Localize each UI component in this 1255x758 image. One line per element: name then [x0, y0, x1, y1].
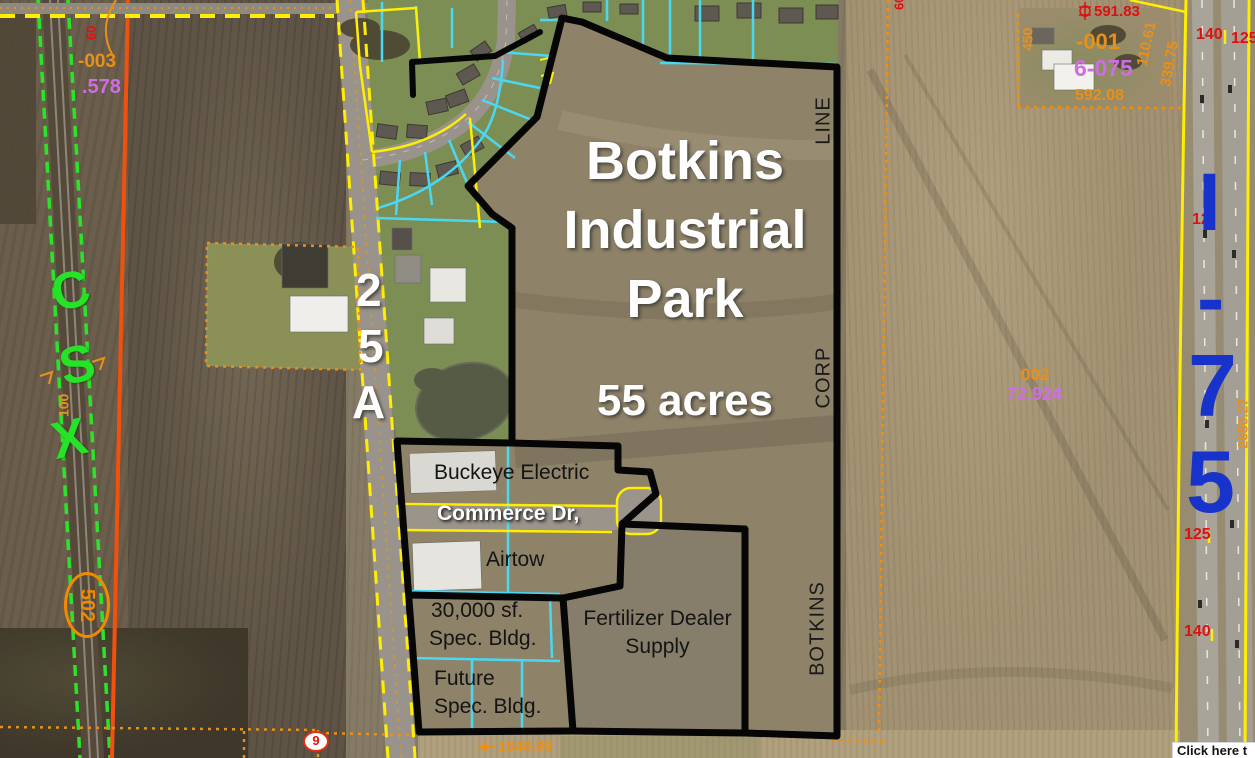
dim-450: 450	[1021, 19, 1036, 59]
corp-line-word-line: LINE	[814, 91, 835, 151]
route-25a-char-5: 5	[358, 322, 384, 370]
dim-2650: 2650.27	[1236, 393, 1251, 453]
i75-char-7: 7	[1188, 342, 1237, 430]
label-commerce-dr: Commerce Dr,	[437, 503, 579, 525]
parcel-001-code: 6-075	[1074, 56, 1133, 80]
parcel-002-label: 002	[1021, 366, 1049, 384]
frontage-125-top: 125	[1231, 31, 1255, 48]
corp-line-word-botkins: BOTKINS	[808, 579, 829, 679]
dim-arrowhead	[478, 742, 487, 752]
label-future-line2: Spec. Bldg.	[434, 696, 541, 718]
i75-char-i: I	[1198, 162, 1221, 244]
dim-60-right: 60	[892, 0, 906, 10]
parcel-002-acreage: 72.924	[1007, 385, 1062, 404]
dim-592: 592.08	[1075, 88, 1124, 105]
route-25a-char-a: A	[352, 378, 385, 426]
frontage-140-top: 140	[1196, 27, 1223, 44]
route-9-marker: 9	[303, 731, 329, 752]
label-buckeye-electric: Buckeye Electric	[434, 462, 589, 484]
label-fertilizer-line1: Fertilizer Dealer	[565, 608, 750, 630]
click-here-button[interactable]: Click here t	[1172, 742, 1255, 758]
label-airtow: Airtow	[486, 549, 544, 571]
park-title-line1: Botkins	[540, 133, 830, 190]
label-spec30-line2: Spec. Bldg.	[429, 628, 536, 650]
i75-char-5: 5	[1186, 438, 1235, 526]
dim-591: 591.83	[1094, 4, 1140, 20]
i75-char-dash: -	[1197, 258, 1224, 340]
label-fertilizer-line2: Supply	[565, 636, 750, 658]
corp-line-word-corp: CORP	[814, 349, 835, 409]
park-title-line2: Industrial	[510, 202, 860, 259]
route-25a-char-2: 2	[356, 266, 382, 314]
route-502-label: 502	[76, 588, 99, 621]
park-acreage: 55 acres	[540, 378, 830, 424]
parcel-003-acreage: .578	[82, 77, 121, 98]
dim-1648: 1648.99	[498, 739, 552, 755]
route-502-marker: 502	[64, 572, 110, 638]
orange-parcel-line	[112, 0, 128, 758]
survey-marker-icon	[1079, 2, 1091, 20]
label-spec30-line1: 30,000 sf.	[431, 600, 523, 622]
dim-60-left: 60	[84, 26, 98, 40]
aerial-map-canvas[interactable]: 60 -003 .578 100 C S X 502 2 5 A Botkins…	[0, 0, 1255, 758]
route-9-label: 9	[312, 733, 319, 748]
parcel-001-label: -001	[1076, 30, 1120, 53]
park-title-line3: Park	[540, 271, 830, 328]
label-future-line1: Future	[434, 668, 495, 690]
parcel-003-label: -003	[78, 52, 116, 72]
parcel-divider	[410, 595, 563, 598]
frontage-140-low: 140	[1184, 624, 1211, 641]
